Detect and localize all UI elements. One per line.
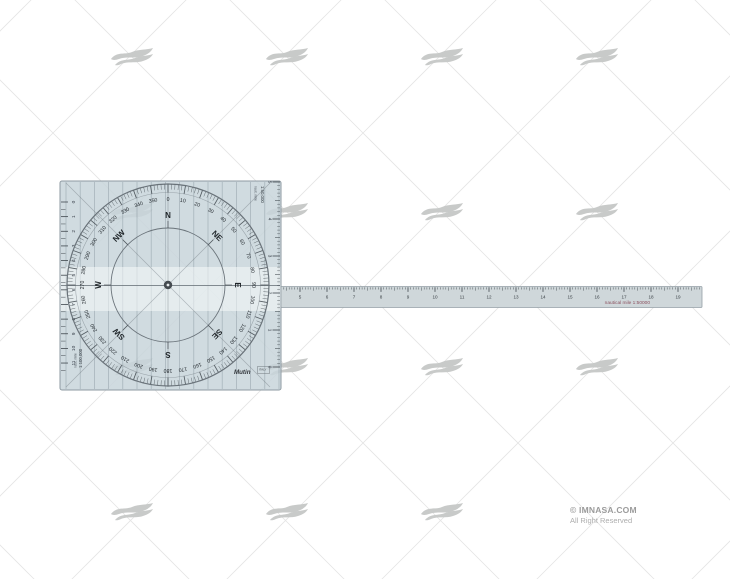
svg-text:4: 4	[267, 218, 272, 221]
svg-text:17: 17	[621, 295, 627, 300]
svg-text:0: 0	[267, 366, 272, 369]
svg-text:19: 19	[675, 295, 681, 300]
svg-text:Mutin: Mutin	[234, 369, 251, 376]
svg-text:18: 18	[648, 295, 654, 300]
svg-text:8: 8	[380, 295, 383, 300]
svg-text:270: 270	[80, 281, 86, 290]
svg-text:E: E	[233, 282, 242, 288]
svg-text:7: 7	[353, 295, 356, 300]
svg-text:0: 0	[167, 197, 170, 203]
copyright-notice: © IMNASA.COM All Right Reserved	[570, 505, 637, 525]
svg-text:S: S	[165, 350, 171, 359]
svg-text:13: 13	[513, 295, 519, 300]
svg-text:2: 2	[71, 230, 77, 233]
svg-text:0: 0	[71, 200, 77, 203]
svg-text:1:100,000: 1:100,000	[78, 348, 83, 368]
svg-text:90: 90	[250, 282, 256, 288]
svg-text:16: 16	[594, 295, 600, 300]
svg-text:11: 11	[460, 295, 465, 300]
svg-text:W: W	[94, 281, 103, 289]
svg-text:1:50,000: 1:50,000	[260, 186, 265, 203]
copyright-rights: All Right Reserved	[570, 516, 637, 525]
svg-text:5: 5	[299, 295, 302, 300]
svg-text:12: 12	[486, 295, 492, 300]
svg-text:3: 3	[267, 255, 272, 258]
svg-text:1: 1	[267, 329, 272, 332]
svg-text:ITALY: ITALY	[259, 368, 266, 372]
svg-text:1: 1	[71, 215, 77, 218]
course-plotter-image: 012345678910111:100,000naut. mile5432101…	[0, 0, 730, 579]
product-photo: 012345678910111:100,000naut. mile5432101…	[0, 0, 730, 579]
svg-text:10: 10	[71, 345, 77, 351]
svg-text:180: 180	[164, 367, 173, 373]
svg-text:80: 80	[248, 267, 255, 274]
svg-text:10: 10	[179, 198, 186, 205]
copyright-site: © IMNASA.COM	[570, 505, 637, 516]
ruler-scale-label: nautical mile 1:50000	[605, 300, 651, 306]
svg-text:naut. mile: naut. mile	[74, 353, 78, 368]
svg-text:10: 10	[432, 295, 438, 300]
svg-text:15: 15	[567, 295, 573, 300]
svg-text:naut. mile: naut. mile	[254, 186, 258, 201]
svg-text:9: 9	[407, 295, 410, 300]
svg-text:6: 6	[326, 295, 329, 300]
svg-text:N: N	[165, 211, 171, 220]
plotter-group: 012345678910111:100,000naut. mile5432101…	[60, 181, 702, 390]
svg-text:5: 5	[267, 181, 272, 184]
svg-text:14: 14	[540, 295, 546, 300]
svg-text:9: 9	[71, 332, 77, 335]
ruler-arm: 5678910111213141516171819nautical mile 1…	[281, 287, 702, 308]
